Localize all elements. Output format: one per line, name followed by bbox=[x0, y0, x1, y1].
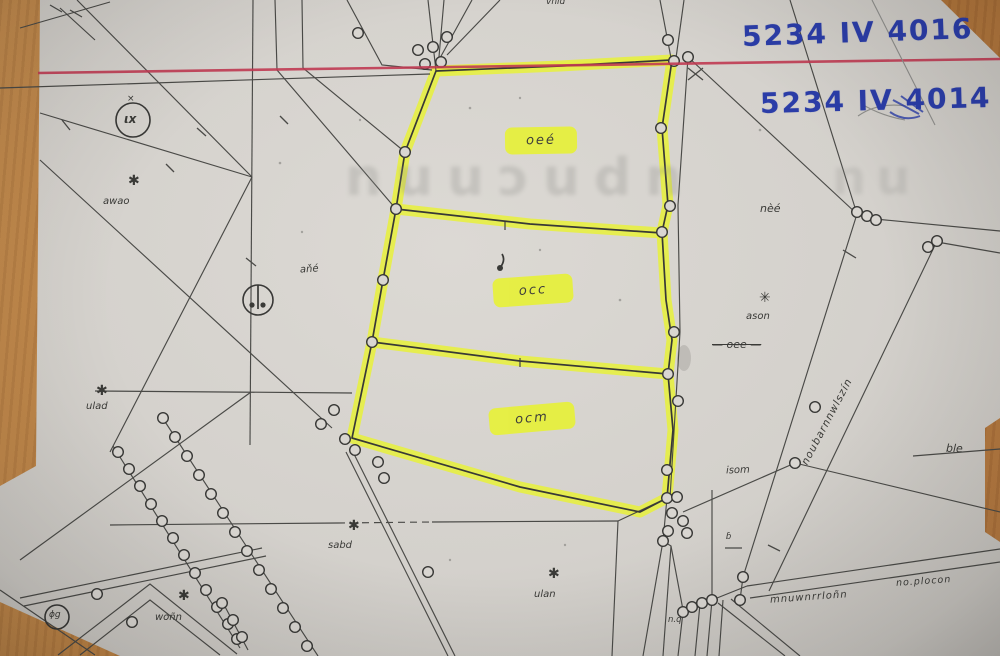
cadastral-map-photo: nuuɔudn nu 5234 IV 4016 5234 IV 4014 oeé… bbox=[0, 0, 1000, 656]
star-note: woñn bbox=[155, 613, 182, 623]
survey-markers-layer bbox=[45, 28, 942, 652]
note-top-cut: vnıd bbox=[546, 0, 565, 7]
note-bottom-cluster: n.q bbox=[668, 616, 682, 625]
watermark-right: nu bbox=[832, 150, 920, 206]
star-icon: ✱ bbox=[128, 174, 140, 188]
circled-bl-text: ɸg bbox=[49, 611, 61, 620]
star-note: ason bbox=[746, 312, 770, 322]
star-note: awao bbox=[103, 197, 130, 207]
note-near-mid-circle: aňé bbox=[300, 264, 319, 275]
note-right-upper: nèé bbox=[760, 203, 781, 214]
circled-left-tick: × bbox=[127, 95, 135, 104]
note-right-edge: ble bbox=[946, 443, 963, 455]
note-bottom-small: ɓ bbox=[726, 533, 731, 542]
star-icon: ✱ bbox=[548, 567, 560, 581]
star-icon: ✳ bbox=[759, 291, 771, 305]
star-icon: ✱ bbox=[348, 519, 360, 533]
star-note: ulan bbox=[534, 590, 556, 600]
circled-left-text: ιx bbox=[124, 113, 136, 125]
crossed-parcel-number: — oee — bbox=[712, 339, 761, 350]
smudge bbox=[677, 345, 691, 371]
note-right-lower: isom bbox=[726, 466, 750, 477]
sheet-number-bottom: 5234 IV 4014 bbox=[760, 81, 992, 120]
star-icon: ✱ bbox=[178, 589, 190, 603]
parcel-1-label: oeé bbox=[505, 126, 577, 154]
star-note: sabd bbox=[328, 541, 352, 551]
watermark-left: nuuɔudn bbox=[345, 148, 696, 208]
star-note: ulad bbox=[86, 402, 108, 412]
parcel-2-label: occ bbox=[492, 273, 574, 308]
star-icon: ✱ bbox=[96, 384, 108, 398]
